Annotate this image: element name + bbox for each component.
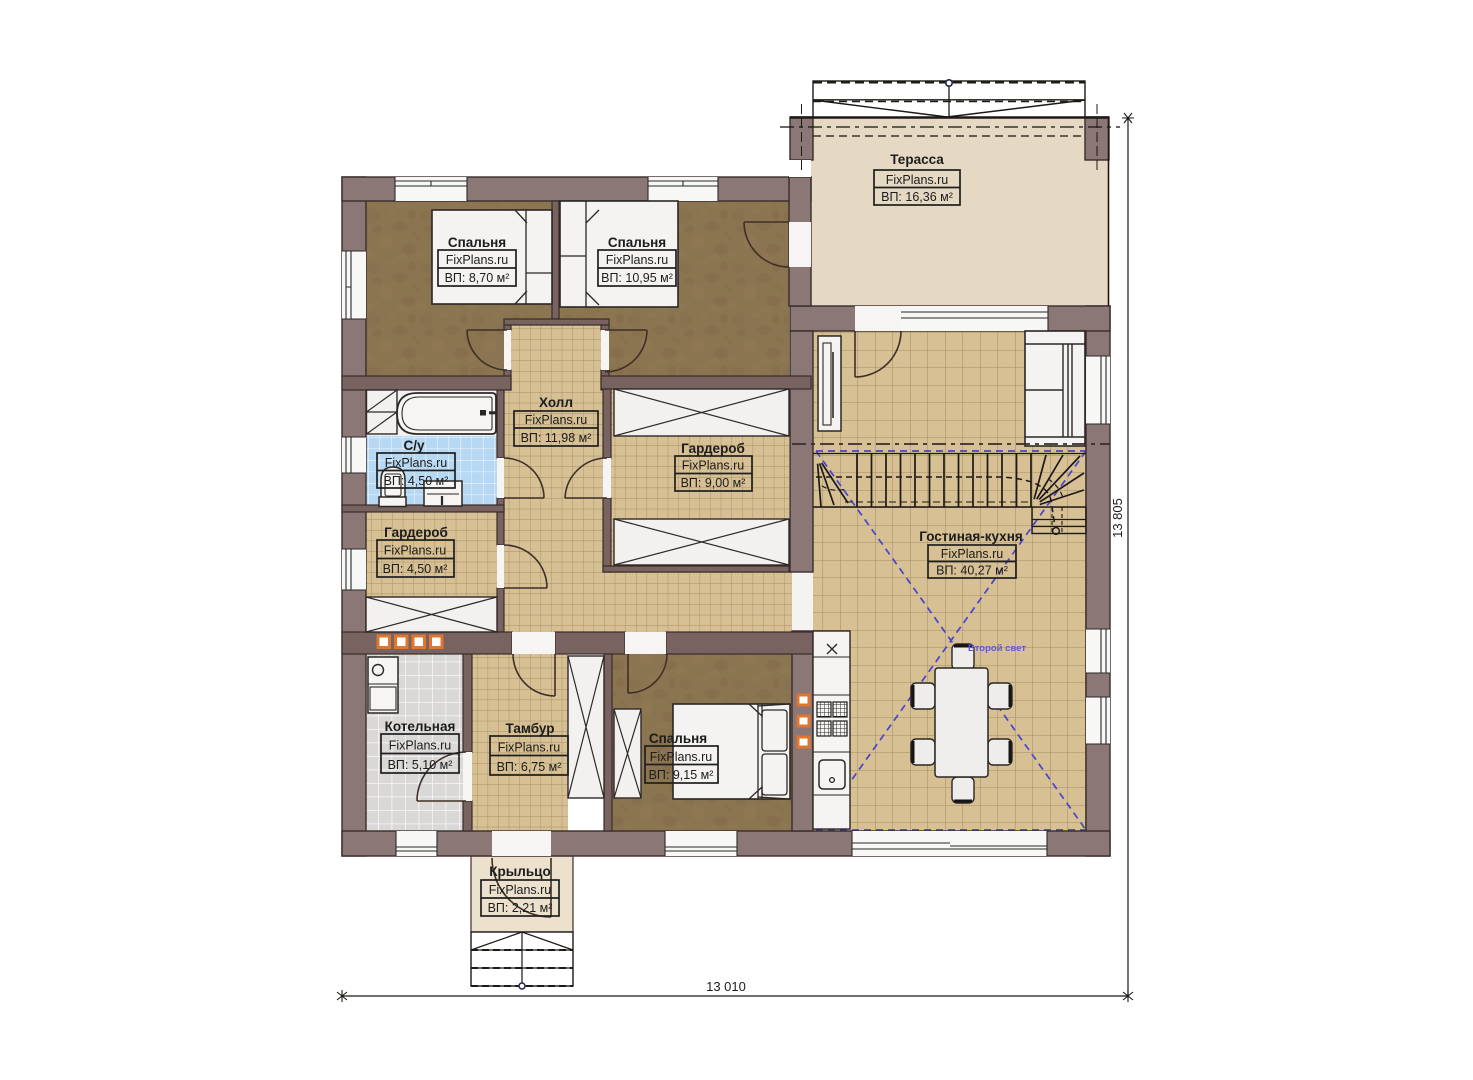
svg-text:ВП: 6,75 м²: ВП: 6,75 м² — [497, 760, 562, 774]
svg-text:ВП: 4,50 м²: ВП: 4,50 м² — [384, 474, 449, 488]
svg-text:Гардероб: Гардероб — [384, 525, 448, 540]
svg-text:FixPlans.ru: FixPlans.ru — [941, 547, 1004, 561]
svg-text:Крыльцо: Крыльцо — [489, 864, 550, 879]
svg-text:ВП: 40,27 м²: ВП: 40,27 м² — [936, 564, 1008, 578]
svg-text:Спальня: Спальня — [448, 235, 506, 250]
svg-text:Второй свет: Второй свет — [968, 643, 1026, 654]
svg-text:Гостиная-кухня: Гостиная-кухня — [919, 529, 1022, 544]
svg-text:Холл: Холл — [539, 395, 573, 410]
svg-text:Гардероб: Гардероб — [681, 441, 745, 456]
svg-text:13 010: 13 010 — [706, 979, 746, 994]
svg-text:ВП: 8,70 м²: ВП: 8,70 м² — [445, 271, 510, 285]
svg-text:FixPlans.ru: FixPlans.ru — [525, 413, 588, 427]
svg-text:Тамбур: Тамбур — [506, 721, 555, 736]
svg-text:FixPlans.ru: FixPlans.ru — [446, 253, 509, 267]
svg-text:ВП: 9,15 м²: ВП: 9,15 м² — [649, 768, 714, 782]
svg-text:ВП: 16,36 м²: ВП: 16,36 м² — [881, 190, 953, 204]
svg-text:Терасса: Терасса — [890, 152, 944, 167]
svg-text:FixPlans.ru: FixPlans.ru — [682, 459, 745, 473]
svg-text:ВП: 2,21 м²: ВП: 2,21 м² — [488, 901, 553, 915]
svg-text:ВП: 9,00 м²: ВП: 9,00 м² — [681, 476, 746, 490]
svg-text:ВП: 11,98 м²: ВП: 11,98 м² — [521, 431, 592, 445]
svg-text:С/у: С/у — [403, 438, 425, 453]
svg-text:FixPlans.ru: FixPlans.ru — [385, 456, 448, 470]
svg-text:FixPlans.ru: FixPlans.ru — [389, 739, 452, 753]
svg-text:FixPlans.ru: FixPlans.ru — [489, 883, 552, 897]
svg-text:FixPlans.ru: FixPlans.ru — [650, 750, 713, 764]
svg-text:13 805: 13 805 — [1110, 498, 1125, 538]
svg-text:ВП: 10,95 м²: ВП: 10,95 м² — [601, 271, 673, 285]
svg-text:Спальня: Спальня — [608, 235, 666, 250]
svg-text:ВП: 4,50 м²: ВП: 4,50 м² — [383, 562, 448, 576]
svg-text:FixPlans.ru: FixPlans.ru — [498, 741, 561, 755]
svg-text:FixPlans.ru: FixPlans.ru — [606, 253, 669, 267]
svg-text:Спальня: Спальня — [649, 731, 707, 746]
svg-text:Котельная: Котельная — [385, 719, 456, 734]
svg-text:FixPlans.ru: FixPlans.ru — [384, 544, 447, 558]
svg-text:FixPlans.ru: FixPlans.ru — [886, 173, 949, 187]
svg-text:ВП: 5,10 м²: ВП: 5,10 м² — [388, 758, 453, 772]
